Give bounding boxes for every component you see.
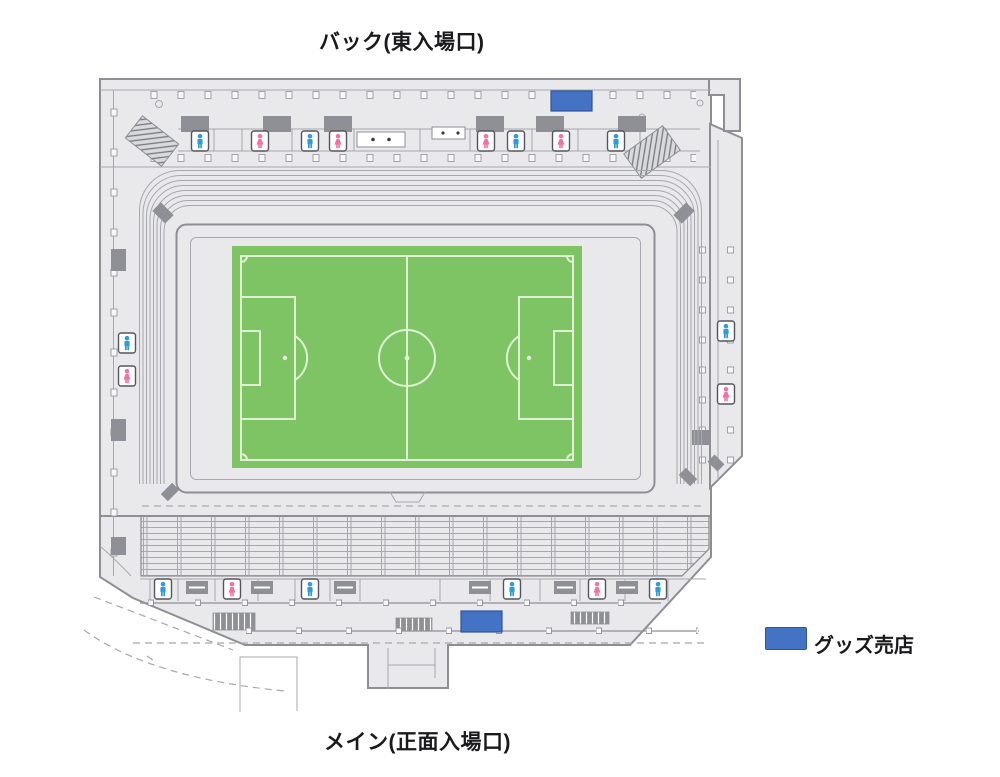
goods-shop-legend-label: グッズ売店	[814, 629, 914, 658]
restroom-female-icon	[589, 579, 606, 599]
restroom-male-icon	[608, 131, 625, 151]
main-entrance-label: メイン(正面入場口)	[324, 726, 511, 756]
restroom-female-icon	[330, 131, 347, 151]
restroom-female-icon	[224, 579, 241, 599]
goods-shop-marker	[551, 91, 592, 111]
soccer-pitch	[232, 246, 582, 468]
restroom-male-icon	[302, 579, 319, 599]
restroom-male-icon	[504, 579, 521, 599]
restroom-female-icon	[718, 384, 735, 404]
goods-shop-swatch	[765, 627, 807, 650]
restroom-female-icon	[553, 131, 570, 151]
back-entrance-label: バック(東入場口)	[319, 26, 485, 56]
restroom-male-icon	[302, 131, 319, 151]
goods-shop-marker	[461, 611, 502, 632]
restroom-male-icon	[718, 321, 735, 341]
restroom-male-icon	[119, 333, 136, 353]
restroom-male-icon	[508, 131, 525, 151]
restroom-male-icon	[650, 579, 667, 599]
stadium-map-page: バック(東入場口) メイン(正面入場口) グッズ売店	[0, 0, 1000, 777]
restroom-female-icon	[478, 131, 495, 151]
restroom-female-icon	[252, 131, 269, 151]
restroom-female-icon	[119, 366, 136, 386]
restroom-male-icon	[192, 131, 209, 151]
stadium-map	[0, 0, 1000, 777]
restroom-male-icon	[155, 579, 172, 599]
